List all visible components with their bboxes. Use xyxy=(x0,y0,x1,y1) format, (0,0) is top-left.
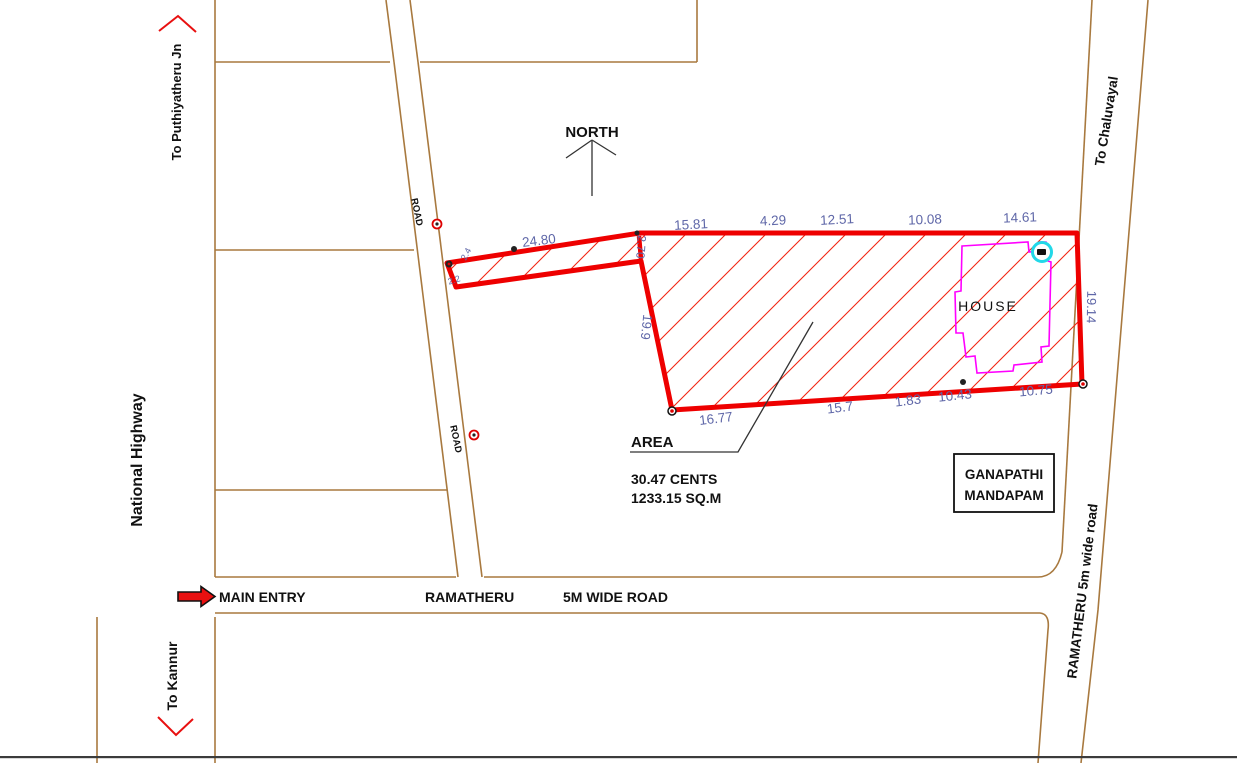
dim-top-5: 14.61 xyxy=(1003,209,1037,225)
landmark-line1: GANAPATHI xyxy=(965,467,1043,482)
direction-puthiyatheru: To Puthiyatheru Jn xyxy=(169,44,184,161)
marker-tip-corner-center xyxy=(448,263,451,266)
dim-right: 19.14 xyxy=(1084,291,1100,324)
diagonal-road-east-edge-above xyxy=(410,0,418,62)
window-bottom-border xyxy=(0,756,1237,758)
main-entry-arrow-icon xyxy=(178,587,215,607)
diagonal-road-west-edge-above xyxy=(386,0,394,62)
road-post-lower-center xyxy=(472,433,475,436)
direction-kannur: To Kannur xyxy=(164,641,180,711)
landmark-line2: MANDAPAM xyxy=(964,488,1043,503)
area-title: AREA xyxy=(631,434,674,451)
dim-bottom-2: 15.7 xyxy=(826,398,854,416)
well-mark xyxy=(1037,249,1046,255)
main-entry-label: MAIN ENTRY xyxy=(219,589,306,605)
dim-top-4: 10.08 xyxy=(908,211,942,227)
marker-bottom-edge xyxy=(960,379,966,385)
marker-se-center xyxy=(1081,382,1085,386)
north-arrow-icon xyxy=(566,140,616,196)
dim-bottom-5: 10.75 xyxy=(1018,382,1053,400)
national-highway-label: National Highway xyxy=(129,393,146,526)
wide-road-label: 5M WIDE ROAD xyxy=(563,589,668,605)
dim-bottom-3: 1.83 xyxy=(894,391,922,409)
dim-bottom-1: 16.77 xyxy=(698,409,733,428)
area-cents: 30.47 CENTS xyxy=(631,471,717,487)
dim-left: 19.9 xyxy=(638,314,656,341)
chevron-up-icon xyxy=(159,16,196,32)
plot-boundary xyxy=(447,233,1082,410)
ramatheru-label: RAMATHERU xyxy=(425,589,514,605)
chevron-down-icon xyxy=(158,717,193,735)
site-plan-svg: NORTH AREA 30.47 CENTS 1233.15 SQ.M GANA… xyxy=(0,0,1237,763)
marker-strip-top xyxy=(511,246,517,252)
ramatheru-road-bottom-edge xyxy=(215,613,1048,763)
plot-parcel xyxy=(447,233,1082,410)
dim-top-1: 15.81 xyxy=(674,216,709,233)
area-sqm: 1233.15 SQ.M xyxy=(631,490,721,506)
diagonal-road-west-edge xyxy=(394,62,458,577)
diagonal-road-east-edge xyxy=(418,62,482,577)
dim-top-2: 4.29 xyxy=(759,212,786,228)
direction-chaluvayal: To Chaluvayal xyxy=(1092,75,1121,167)
house-label: HOUSE xyxy=(958,298,1018,314)
road-label-lower: ROAD xyxy=(447,424,464,454)
ramatheru-side-label: RAMATHERU 5m wide road xyxy=(1064,503,1100,680)
marker-sw-center xyxy=(670,409,674,413)
dim-top-3: 12.51 xyxy=(820,211,855,228)
site-plan-canvas: NORTH AREA 30.47 CENTS 1233.15 SQ.M GANA… xyxy=(0,0,1237,763)
dim-step: 2.70 xyxy=(633,235,649,260)
north-label: NORTH xyxy=(565,124,618,141)
road-post-upper-center xyxy=(435,222,438,225)
ramatheru-road-top-edge-right xyxy=(484,552,1062,577)
road-label-upper: ROAD xyxy=(408,197,425,227)
landmark-box xyxy=(954,454,1054,512)
dim-bottom-4: 10.43 xyxy=(937,386,972,404)
